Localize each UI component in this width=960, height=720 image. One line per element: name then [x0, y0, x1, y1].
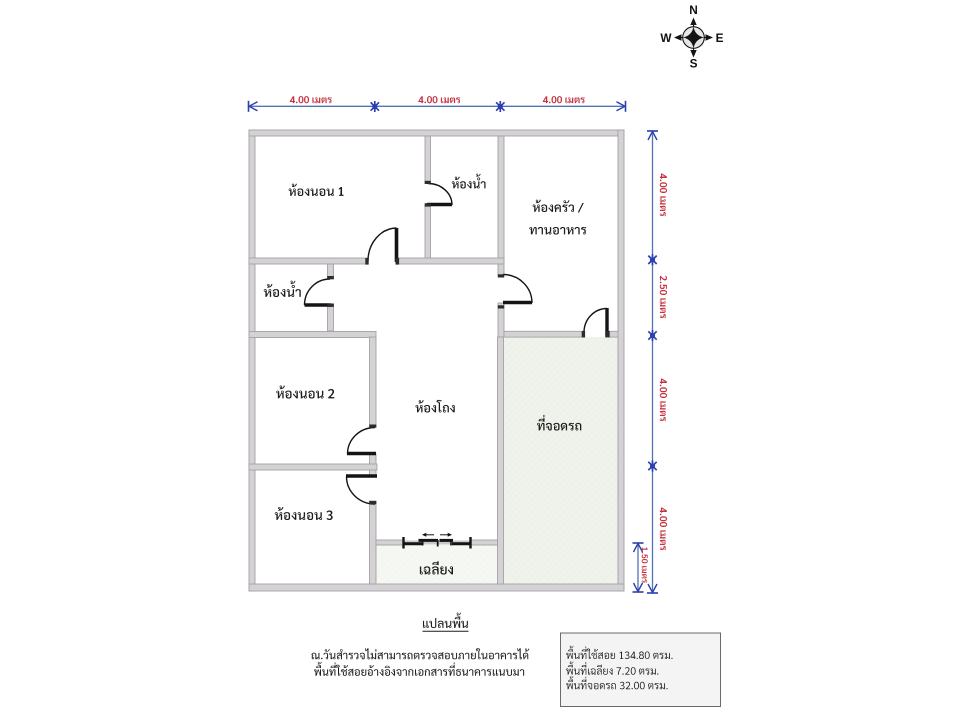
- svg-text:E: E: [716, 31, 724, 45]
- svg-text:N: N: [689, 3, 698, 17]
- svg-text:W: W: [660, 31, 672, 45]
- svg-text:S: S: [690, 57, 698, 71]
